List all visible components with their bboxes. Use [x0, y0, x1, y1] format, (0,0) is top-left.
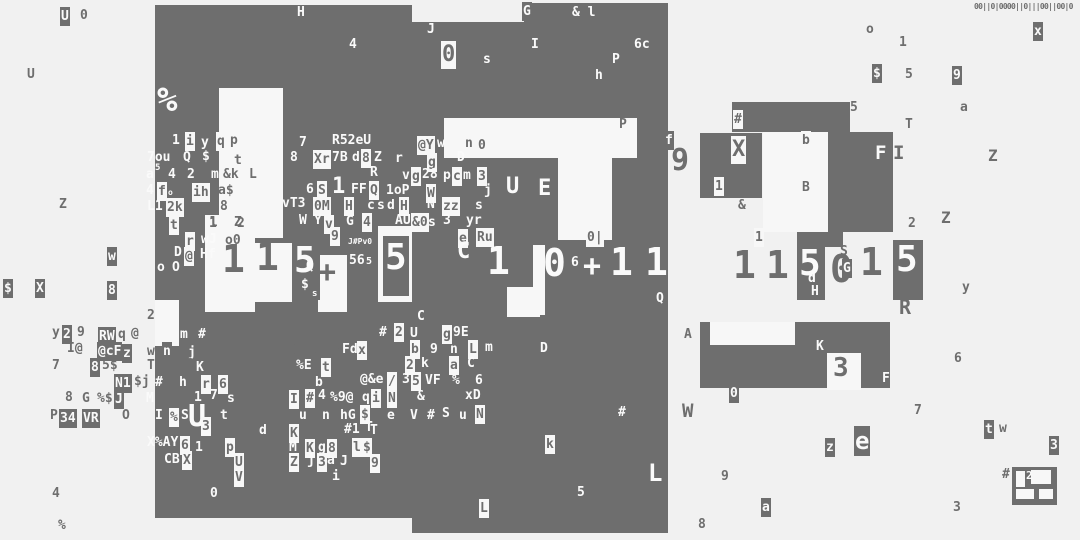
glyph: CB [164, 453, 180, 466]
glyph: 9 [952, 66, 962, 85]
glyph: M [146, 392, 154, 405]
glyph: 1 [899, 36, 907, 49]
hole-rect [763, 132, 828, 232]
glyph: & [738, 199, 746, 212]
glyph: s [428, 216, 436, 229]
glyph: I [531, 38, 539, 51]
glyph: 5 [905, 68, 913, 81]
glyph: i [371, 389, 381, 408]
glyph: D [457, 151, 465, 164]
glyph: E [332, 343, 340, 356]
glyph: P [50, 409, 58, 422]
glyph: F [882, 372, 890, 385]
glyph: t [984, 420, 994, 439]
glyph: 5 [577, 486, 585, 499]
glyph: & l [572, 6, 595, 19]
glyph: W [299, 214, 307, 227]
glyph: % [58, 519, 66, 532]
glyph: 0 [210, 487, 218, 500]
glyph: b [801, 131, 811, 150]
glyph: s [312, 290, 317, 299]
glyph: 1 [754, 228, 764, 247]
glyph: s [227, 392, 235, 405]
glyph: 1 [766, 246, 789, 284]
glyph: $ [872, 64, 882, 83]
glyph: U [410, 327, 418, 340]
glyph: J#Pv0 [348, 238, 372, 246]
glyph: O [122, 409, 130, 422]
glyph: 7 [52, 359, 60, 372]
glyph: o [168, 189, 173, 197]
glyph: 0| [586, 228, 604, 247]
glyph: z [122, 344, 132, 363]
glyph: 1 [645, 243, 668, 281]
glyph: @ [184, 247, 194, 266]
glyph: + [583, 252, 601, 282]
glyph: 28 [422, 168, 438, 181]
glyph: U [506, 176, 519, 198]
glyph: VF [425, 374, 441, 387]
glyph: # [733, 110, 743, 129]
glyph: n [322, 409, 330, 422]
glyph: xD [465, 389, 481, 402]
blob-rect [524, 3, 668, 22]
glyph: P [619, 118, 627, 131]
glyph: C [417, 310, 425, 323]
glyph: 4 [146, 184, 154, 197]
glyph: 1 [610, 243, 633, 281]
glyph: K [816, 340, 824, 353]
block-cutout [1016, 489, 1034, 499]
glyph: U [60, 7, 70, 26]
glyph: Z [59, 198, 67, 211]
glyph: # [427, 409, 435, 422]
glyph: q [216, 132, 226, 151]
glyph: i [185, 132, 195, 151]
glyph: D [174, 246, 182, 259]
glyph: v [402, 169, 410, 182]
glyph: 4 [362, 213, 372, 232]
glyph: e [387, 409, 395, 422]
blob-rect [732, 102, 850, 132]
glyph: %$ [97, 392, 113, 405]
hole-rect [558, 158, 612, 240]
glyph: 34 [59, 409, 77, 428]
glyph: G [842, 259, 852, 278]
glyph: 3 [317, 453, 327, 472]
glyph: s [475, 199, 483, 212]
glyph: &0 [411, 213, 429, 232]
glyph: y [52, 326, 60, 339]
glyph: Q [656, 292, 664, 305]
glyph: 0 [729, 384, 739, 403]
glyph: 56 [349, 254, 365, 267]
glitch-art-canvas: U0UZ$Xw8y29RWq@I@@cFzwnj2785$4%H4%J0sIG&… [0, 0, 1080, 540]
glyph: 3 [953, 501, 961, 514]
glyph: h [179, 376, 187, 389]
glyph: yr [466, 214, 482, 227]
glyph: $j [134, 375, 150, 388]
glyph: & [417, 390, 425, 403]
glyph: 9 [370, 454, 380, 473]
glyph: # [305, 389, 315, 408]
glyph: h [594, 66, 604, 85]
glyph: 6 [309, 344, 317, 357]
glyph: Y [314, 214, 322, 227]
glyph: 5 [366, 257, 372, 267]
glyph: x [1033, 22, 1043, 41]
glyph: a [146, 168, 154, 181]
glyph: D [540, 342, 548, 355]
glyph: c [452, 167, 462, 186]
glyph: 1oP [386, 184, 409, 197]
glyph: W [682, 402, 693, 421]
glyph: I@ [67, 342, 83, 355]
glyph: L [648, 461, 662, 485]
glyph: 7 [914, 404, 922, 417]
glyph: 0 [292, 344, 300, 357]
glyph: 3 [201, 417, 211, 436]
glyph: a [327, 454, 335, 467]
hole-rect [507, 287, 540, 317]
glyph: 2 [147, 309, 155, 322]
glyph: 9 [77, 326, 85, 339]
glyph: X [731, 136, 746, 164]
glyph: # [1002, 468, 1010, 481]
glyph: j [307, 454, 315, 467]
glyph: R [370, 166, 378, 179]
glyph: X%AY [147, 436, 178, 449]
glyph: w [999, 422, 1007, 435]
glyph: 9 [430, 343, 438, 356]
glyph: Z [374, 151, 382, 164]
glyph: 2k [166, 198, 184, 217]
glyph: vT3 [282, 197, 305, 210]
glyph: n [464, 134, 474, 153]
glyph: 1 [860, 243, 883, 281]
glyph: 5 [155, 164, 160, 173]
glyph: C [457, 241, 470, 263]
block-cutout [1039, 489, 1053, 499]
glyph: 2 [237, 217, 245, 230]
glyph: # [155, 376, 163, 389]
glyph: I [155, 409, 163, 422]
glyph: U [27, 68, 35, 81]
glyph: 2 [187, 168, 195, 181]
glyph: $ [360, 405, 370, 424]
glyph: t [234, 154, 242, 167]
glyph: $ [202, 150, 210, 163]
glyph: y [201, 136, 209, 149]
glyph: 1 [209, 217, 217, 230]
glyph: 5 [322, 328, 330, 341]
glyph: N [387, 389, 397, 408]
glyph: A [684, 328, 692, 341]
glyph: p [443, 169, 451, 182]
glyph: a [960, 101, 968, 114]
glyph: k [421, 357, 429, 370]
glyph: 5 [850, 101, 858, 114]
glyph: Fd [342, 343, 358, 356]
glyph: %9@ [330, 391, 353, 404]
glyph: 3 [833, 355, 849, 381]
glyph: AU [395, 214, 411, 227]
glyph: 00||0|0000||0|||00||00|0 [974, 3, 1073, 11]
glyph: 9 [330, 227, 340, 246]
glyph: 8 [220, 200, 228, 213]
glyph: % [452, 374, 460, 387]
glyph: 6 [306, 183, 314, 196]
glyph: $ [301, 278, 309, 291]
glyph: I [289, 390, 299, 409]
glyph: Z [988, 148, 998, 164]
glyph: t [169, 216, 179, 235]
glyph: g [411, 167, 421, 186]
hole-rect [710, 322, 795, 345]
glyph: 8 [107, 281, 117, 300]
glyph: 8 [90, 358, 100, 377]
glyph: N [475, 405, 485, 424]
glyph: 0 [477, 136, 487, 155]
glyph: @ [131, 327, 139, 340]
glyph: 1 [172, 134, 180, 147]
glyph: o [157, 261, 165, 274]
glyph: e [854, 426, 870, 456]
glyph: 6 [571, 256, 579, 269]
glyph: # [618, 406, 626, 419]
glyph: 9 [721, 470, 729, 483]
glyph: q [118, 328, 126, 341]
glyph: F [875, 144, 886, 163]
glyph: n [162, 342, 172, 361]
glyph: S [442, 407, 450, 420]
glyph: j [484, 184, 492, 197]
glyph: @&e [360, 373, 383, 386]
glyph: 6c [633, 35, 651, 54]
glyph: P [612, 53, 620, 66]
glyph: z [825, 438, 835, 457]
glyph: T [370, 424, 378, 437]
glyph: 4 [349, 38, 357, 51]
glyph: E [538, 178, 551, 200]
glyph: X [182, 451, 192, 470]
glyph: X [35, 279, 45, 298]
glyph: 6 [475, 374, 483, 387]
glyph: 2 [1026, 470, 1033, 481]
glyph: 3 [402, 373, 410, 386]
glyph: O [172, 261, 180, 274]
block-cutout [1016, 471, 1025, 487]
glyph: 3 [1049, 436, 1059, 455]
glyph: 3 [443, 214, 451, 227]
glyph: #1 [344, 423, 360, 436]
glyph: 5$ [102, 359, 118, 372]
glyph: 8 [290, 151, 298, 164]
glyph: L [249, 168, 257, 181]
glyph: r [395, 152, 403, 165]
glyph: T [147, 359, 155, 372]
glyph: % [169, 408, 179, 427]
glyph: % [157, 83, 177, 117]
glyph: l [352, 438, 362, 457]
glyph: 8 [698, 518, 706, 531]
glyph: 1 [195, 441, 203, 454]
glyph: R52eU [332, 134, 371, 147]
glyph: 5 [385, 240, 407, 276]
glyph: J [114, 390, 124, 409]
glyph: ih [192, 183, 210, 202]
glyph: 2 [394, 323, 404, 342]
glyph: L [479, 499, 489, 518]
glyph: %E [296, 359, 312, 372]
glyph: n [450, 343, 458, 356]
glyph: 1 [487, 242, 510, 280]
glyph: L1 [147, 200, 163, 213]
glyph: wJ [201, 233, 217, 246]
glyph: G [346, 215, 354, 228]
glyph: 7B [332, 151, 348, 164]
glyph: m [211, 168, 219, 181]
glyph: w [107, 247, 117, 266]
glyph: d [352, 151, 360, 164]
glyph: 1 [222, 240, 245, 278]
glyph: y [962, 281, 970, 294]
glyph: u [299, 409, 307, 422]
glyph: 2 [908, 217, 916, 230]
glyph: 4 [168, 168, 176, 181]
glyph: a [761, 498, 771, 517]
glyph: Hf [200, 248, 216, 261]
glyph: 1 [714, 177, 724, 196]
glyph: 1 [256, 238, 279, 276]
glyph: Xr [313, 150, 331, 169]
glyph: V [234, 468, 244, 487]
glyph: 0 [543, 244, 566, 282]
glyph: T [905, 118, 913, 131]
glyph: 0 [80, 9, 88, 22]
glyph: d [259, 424, 267, 437]
glyph: N [427, 198, 435, 211]
glyph: m [180, 328, 188, 341]
glyph: C [467, 357, 475, 370]
glyph: Z [941, 210, 951, 226]
glyph: $ [3, 279, 13, 298]
glyph: 4 [52, 487, 60, 500]
glyph: V [410, 409, 418, 422]
glyph: + [318, 258, 336, 288]
glyph: 1 [332, 176, 345, 198]
glyph: k [545, 435, 555, 454]
glyph: x [357, 341, 367, 360]
glyph: B [802, 181, 810, 194]
glyph: 7 [299, 136, 307, 149]
glyph: # [379, 326, 387, 339]
glyph: 9E [453, 326, 469, 339]
glyph: G [522, 2, 532, 21]
glyph: w [437, 137, 445, 150]
glyph: Z [289, 453, 299, 472]
glyph: Q [183, 151, 191, 164]
glyph: FF [351, 183, 367, 196]
glyph: o [866, 23, 874, 36]
glyph: 9 [671, 146, 689, 176]
glyph: p [230, 134, 238, 147]
glyph: i [332, 470, 340, 483]
glyph: S [186, 358, 194, 371]
glyph: VR [82, 409, 100, 428]
glyph: &k [223, 168, 239, 181]
glyph: J [340, 455, 348, 468]
glyph: # [198, 328, 206, 341]
hole-rect [155, 300, 179, 346]
glyph: 4 [318, 389, 326, 402]
glyph: 6 [954, 352, 962, 365]
glyph: 5 [896, 242, 918, 278]
block-cutout [1031, 470, 1051, 484]
glyph: a$ [218, 184, 234, 197]
glyph: I [893, 144, 904, 163]
glyph: q [362, 391, 370, 404]
glyph: 8 [65, 391, 73, 404]
glyph: c [367, 199, 375, 212]
glyph: G [82, 392, 90, 405]
glyph: t [220, 409, 228, 422]
glyph: s [377, 199, 385, 212]
glyph: m [463, 169, 471, 182]
glyph: Q [306, 260, 314, 273]
glyph: 1 [733, 246, 756, 284]
glyph: hG [340, 409, 356, 422]
glyph: w [147, 345, 155, 358]
glyph: H [811, 285, 819, 298]
glyph: u [459, 409, 467, 422]
glyph: 7 [210, 389, 218, 402]
glyph: m [485, 341, 493, 354]
glyph: R [899, 297, 911, 317]
glyph: d [387, 199, 395, 212]
glyph: H [297, 6, 305, 19]
glyph: s [483, 53, 491, 66]
glyph: 0 [441, 41, 456, 69]
glyph: J [427, 23, 435, 36]
